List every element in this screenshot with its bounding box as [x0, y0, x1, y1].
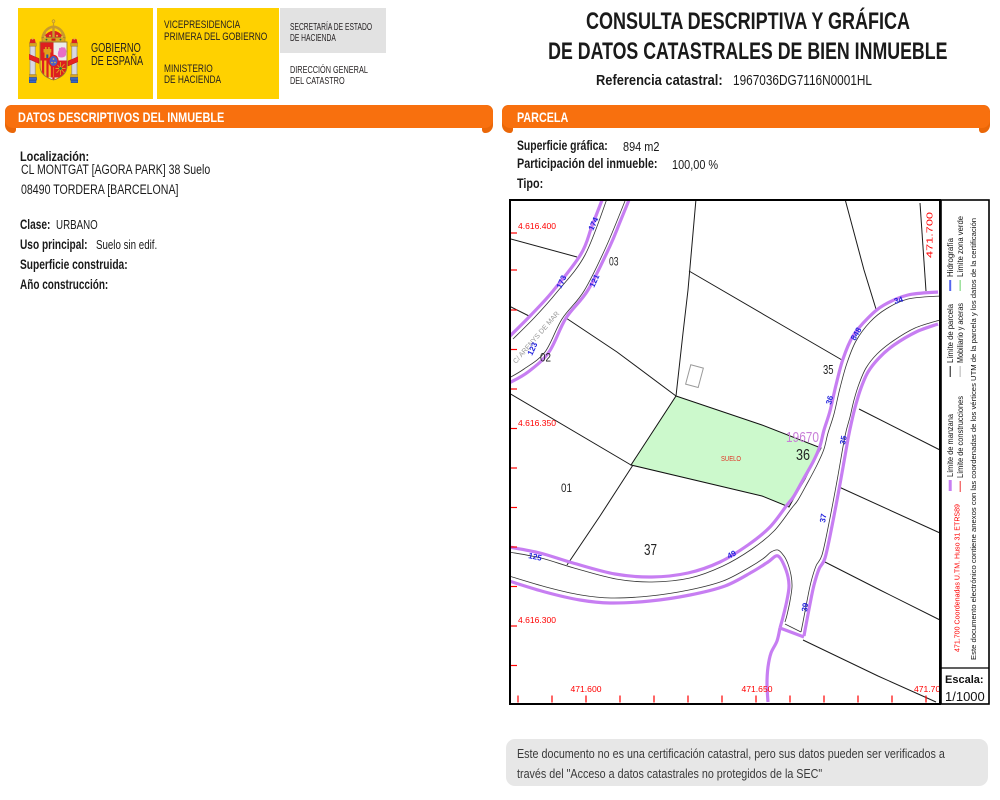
svg-text:1/1000: 1/1000 [945, 689, 985, 704]
svg-text:Límite de construcciones: Límite de construcciones [956, 396, 965, 478]
svg-text:19670: 19670 [786, 429, 819, 446]
svg-text:Límite zona verde: Límite zona verde [956, 216, 965, 277]
svg-text:Hidrografía: Hidrografía [946, 237, 955, 277]
svg-text:03: 03 [609, 257, 619, 269]
svg-text:4.616.400: 4.616.400 [518, 221, 556, 231]
svg-text:Límite de parcela: Límite de parcela [946, 303, 955, 363]
svg-text:Este documento electrónico con: Este documento electrónico contiene anex… [969, 218, 978, 660]
svg-text:4.616.350: 4.616.350 [518, 418, 556, 428]
svg-text:35: 35 [823, 362, 834, 377]
svg-text:471.650: 471.650 [742, 684, 773, 694]
svg-text:471.700: 471.700 [926, 211, 935, 258]
svg-text:4.616.300: 4.616.300 [518, 615, 556, 625]
svg-text:471.600: 471.600 [571, 684, 602, 694]
svg-text:Mobiliario y aceras: Mobiliario y aceras [956, 303, 965, 363]
svg-text:Escala:: Escala: [945, 674, 984, 686]
svg-text:02: 02 [540, 353, 551, 365]
svg-text:37: 37 [644, 542, 657, 559]
svg-text:01: 01 [561, 483, 572, 495]
svg-text:36: 36 [796, 447, 810, 464]
svg-text:SUELO: SUELO [721, 454, 741, 463]
svg-text:471.700 Coordenadas U.TM. Huso: 471.700 Coordenadas U.TM. Huso 31 ETRS89 [953, 504, 962, 652]
svg-text:39: 39 [800, 602, 810, 613]
svg-text:Límite de manzana: Límite de manzana [946, 413, 955, 477]
